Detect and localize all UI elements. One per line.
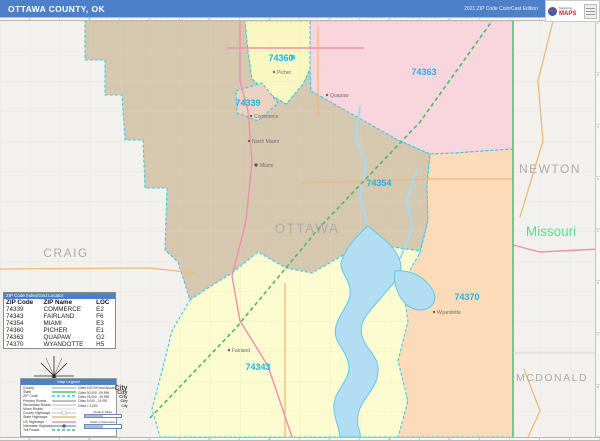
city-label-fairland: Fairland <box>232 348 250 354</box>
city-label-commerce: Commerce <box>254 114 279 120</box>
map-document: { "header": { "title": "OTTAWA COUNTY, O… <box>0 0 600 441</box>
grid-ruler-bottom: ABCDEFGHIJ <box>0 437 600 441</box>
col-zip-name: ZIP Name <box>42 299 95 306</box>
zip-label-74370: 74370 <box>454 292 479 302</box>
logo-badge <box>584 4 597 19</box>
city-dot-fairland <box>228 349 230 351</box>
state-label-missouri: Missouri <box>526 224 576 239</box>
city-label-north-miami: North Miami <box>252 139 279 145</box>
legend-city-under5k: Cities < 5,000City <box>78 404 128 408</box>
grid-ruler-top: ABCDEFGHIJ <box>0 17 600 21</box>
table-row: 74363QUAPAWG2 <box>4 334 115 341</box>
table-row: 74343FAIRLANDF6 <box>4 313 115 320</box>
logo-brand-text: MarketingMAPS <box>559 5 576 17</box>
edition-label: 2021 ZIP Code ColorCast Edition <box>464 6 538 12</box>
city-dot-commerce <box>250 115 252 117</box>
zip-label-74354: 74354 <box>366 178 391 188</box>
title-bar: OTTAWA COUNTY, OK 2021 ZIP Code ColorCas… <box>0 0 600 17</box>
table-row: 74339COMMERCEE2 <box>4 306 115 313</box>
table-header-row: ZIP Code ZIP Name LOC <box>4 299 115 306</box>
grid-ruler-right: 12345678 <box>595 21 600 437</box>
zip-label-74363: 74363 <box>411 67 436 77</box>
legend-city-items: Cities 100,000 and AboveCity Cities 50,0… <box>78 385 130 433</box>
city-dot-quapaw <box>326 94 328 96</box>
city-label-wyandotte: Wyandotte <box>437 310 461 316</box>
city-label-quapaw: Quapaw <box>330 93 349 99</box>
table-row: 74360PICHERE1 <box>4 327 115 334</box>
col-loc: LOC <box>94 299 115 306</box>
city-label-picher: Picher <box>277 70 292 76</box>
zip-index-table: ZIP Code Index/Grid Locator ZIP Code ZIP… <box>3 292 116 349</box>
page-title: OTTAWA COUNTY, OK <box>8 4 105 14</box>
legend-item-toll-roads: Toll Roads <box>23 428 76 432</box>
globe-icon <box>548 7 557 16</box>
county-label-mcdonald: MCDONALD <box>516 372 588 384</box>
col-zip-code: ZIP Code <box>4 299 42 306</box>
scale-bar-miles: Scale in Miles <box>78 410 128 419</box>
county-map-canvas: Picher Commerce North Miami Miami Quapaw… <box>0 21 600 437</box>
city-dot-north-miami <box>248 140 250 142</box>
zip-label-74360: 74360 <box>268 53 293 63</box>
county-label-craig: CRAIG <box>43 246 89 260</box>
city-dot-picher <box>273 71 275 73</box>
city-dot-wyandotte <box>433 311 435 313</box>
legend-line-items: County State ZIP Code Primary Roads Seco… <box>21 385 78 433</box>
zip-label-74343: 74343 <box>245 362 270 372</box>
marketing-maps-logo: MarketingMAPS <box>545 0 600 22</box>
zip-label-74339: 74339 <box>235 98 260 108</box>
map-legend: Map Legend County State ZIP Code Primary… <box>20 378 117 437</box>
scale-bar-kilometers: Scale in Kilometers <box>78 420 128 429</box>
county-label-ottawa: OTTAWA <box>275 221 340 236</box>
city-dot-miami <box>254 163 257 166</box>
table-row: 74370WYANDOTTEH5 <box>4 341 115 348</box>
city-label-miami: Miami <box>260 163 273 169</box>
table-row: 74354MIAMIE3 <box>4 320 115 327</box>
county-label-newton: NEWTON <box>519 162 581 176</box>
